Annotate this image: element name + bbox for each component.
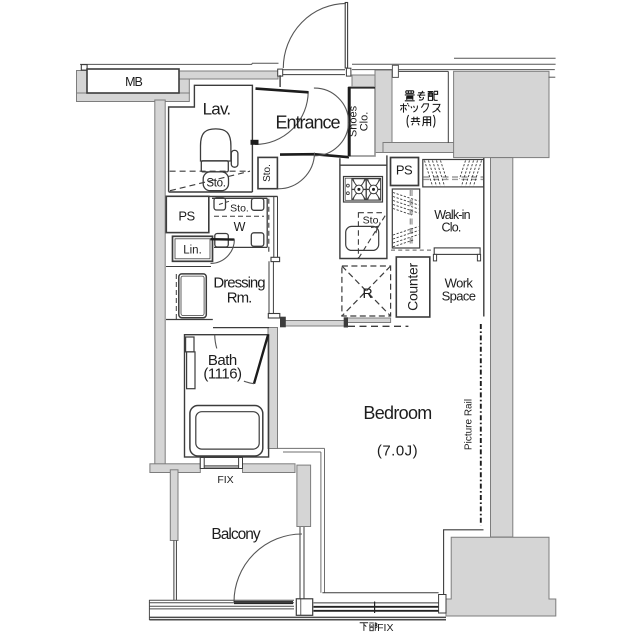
svg-text:PS: PS xyxy=(396,163,413,178)
svg-text:Lin.: Lin. xyxy=(183,245,202,257)
svg-text:Lav.: Lav. xyxy=(203,100,231,119)
svg-text:PS: PS xyxy=(178,209,195,224)
svg-text:Bedroom: Bedroom xyxy=(363,403,431,423)
svg-text:Sto.: Sto. xyxy=(206,177,225,189)
svg-text:Sto.: Sto. xyxy=(363,215,382,227)
svg-text:Sto.: Sto. xyxy=(262,164,273,182)
svg-text:R: R xyxy=(362,285,372,301)
svg-text:Clo.: Clo. xyxy=(359,112,371,132)
svg-text:Balcony: Balcony xyxy=(211,526,260,543)
svg-text:Clo.: Clo. xyxy=(441,221,460,235)
svg-text:FIX: FIX xyxy=(217,474,233,486)
svg-text:Picture Rail: Picture Rail xyxy=(464,399,475,450)
svg-text:W: W xyxy=(234,220,246,234)
svg-text:Counter: Counter xyxy=(405,263,421,311)
svg-text:FIX: FIX xyxy=(377,622,393,634)
svg-text:Sto.: Sto. xyxy=(230,202,249,214)
svg-text:MB: MB xyxy=(125,75,142,89)
svg-text:Rm.: Rm. xyxy=(227,290,252,307)
svg-text:(7.0J): (7.0J) xyxy=(377,443,418,460)
svg-text:Entrance: Entrance xyxy=(275,113,340,133)
svg-text:(1116): (1116) xyxy=(203,366,242,383)
svg-text:Space: Space xyxy=(442,289,476,304)
